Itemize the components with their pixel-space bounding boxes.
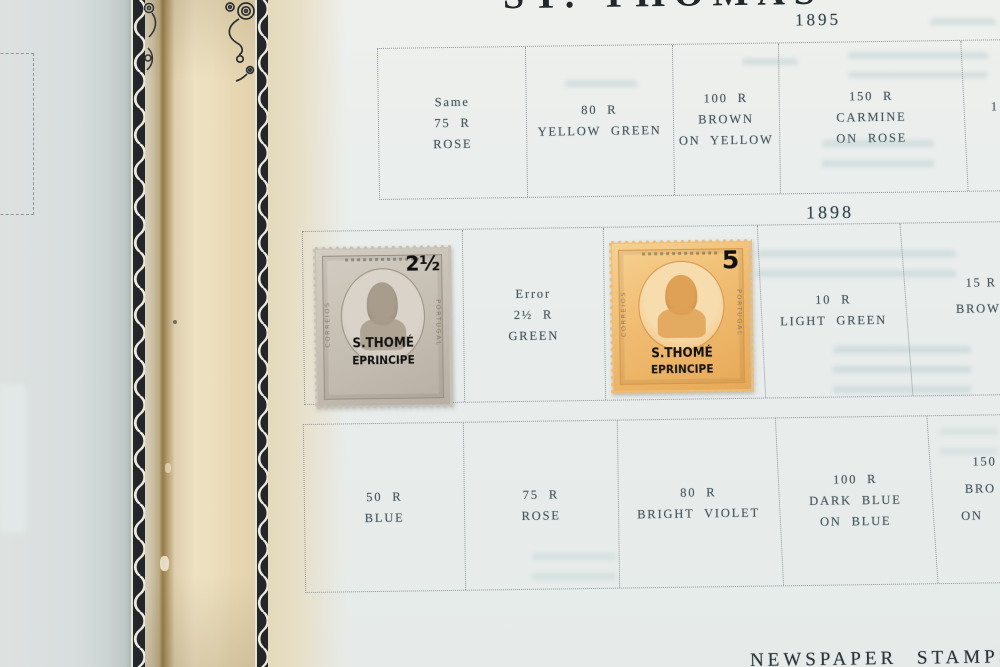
portrait-shoulders — [658, 308, 706, 339]
cell-label-line: BRIGHT VIOLET — [637, 502, 760, 525]
cell-label-line: 100 R — [833, 469, 878, 491]
show-through-text — [848, 52, 988, 78]
cell-label-line: Same — [435, 91, 470, 112]
show-through-text — [940, 428, 998, 468]
cell-label-line: 15 R — [965, 272, 996, 293]
stamp-body: CORREIOS PORTUGAL 5 S.THOMÉ EPRINCIPE — [612, 242, 751, 391]
overprint-line2: EPRINCIPE — [619, 361, 745, 377]
cell-label-line: ROSE — [433, 133, 472, 155]
cell-label-line: BLUE — [365, 507, 405, 529]
stamp-album-photo: ST. THOMAS 1895 Same 75 R ROSE 80 R YELL… — [0, 0, 1000, 667]
stamp-cell: Same 75 R ROSE — [378, 47, 527, 199]
stamp-body: CORREIOS PORTUGAL 2½ S.THOMÉ EPRINCIPE — [316, 248, 450, 406]
stamp-overprint: S.THOMÉ EPRINCIPE — [613, 345, 750, 378]
stamp-cell: 80 R BRIGHT VIOLET — [617, 418, 780, 587]
cell-label-line: DARK BLUE — [809, 490, 902, 512]
year-heading-1898: 1898 — [770, 201, 890, 224]
show-through-text — [930, 18, 996, 32]
cell-label-line: ON YELLOW — [679, 129, 774, 151]
stamp-right-inscription: PORTUGAL — [735, 277, 743, 348]
show-through-text — [822, 140, 934, 180]
stamp-cell: 50 R BLUE — [304, 423, 465, 592]
stamp-cell: 80 R YELLOW GREEN — [525, 45, 674, 197]
cell-label-line: 50 R — [366, 486, 402, 508]
paper-chip — [165, 463, 171, 473]
cell-label-line: 75 R — [523, 484, 559, 506]
cell-label-line: 80 R — [680, 482, 716, 504]
show-through-text — [0, 385, 26, 533]
stamp-denomination: 5 — [722, 247, 740, 272]
year-heading-1895: 1895 — [758, 9, 878, 31]
dust-speck — [173, 320, 177, 324]
cell-label-line: 80 R — [581, 100, 617, 122]
facing-page — [0, 0, 132, 667]
cell-label-line: BROW — [956, 298, 1000, 320]
cell-label-line: 2½ R — [514, 304, 554, 326]
show-through-text — [532, 553, 616, 587]
cell-label-line: 75 R — [434, 112, 470, 134]
show-through-text — [565, 80, 637, 98]
cell-label-line: 100 R — [703, 87, 748, 109]
cell-label-line: 1 — [991, 96, 999, 117]
overprint-line1: S.THOMÉ — [322, 336, 444, 354]
paper-chip — [160, 556, 169, 571]
cell-label-line: CARMINE — [836, 106, 907, 128]
cell-label-line: 10 R — [815, 289, 851, 311]
cell-label-line: GREEN — [508, 325, 559, 347]
cell-label-line: YELLOW GREEN — [538, 120, 662, 143]
overprint-line1: S.THOMÉ — [619, 345, 745, 363]
overprint-line2: EPRINCIPE — [323, 352, 445, 368]
newspaper-stamps-heading: NEWSPAPER STAMPS — [750, 646, 1000, 667]
stamp-denomination: 2½ — [405, 253, 440, 273]
stamp-row-bottom: 50 R BLUE 75 R ROSE 80 R BRIGHT VIOLET 1… — [303, 414, 1000, 593]
stamp-2half-gray: CORREIOS PORTUGAL 2½ S.THOMÉ EPRINCIPE — [313, 245, 453, 409]
cell-label-line: ROSE — [521, 505, 560, 527]
cell-label-line: LIGHT GREEN — [780, 310, 887, 332]
stamp-overprint: S.THOMÉ EPRINCIPE — [317, 335, 449, 367]
show-through-text — [833, 346, 971, 406]
stamp-cell: 100 R DARK BLUE ON BLUE — [778, 416, 933, 585]
cell-label-line: BROWN — [698, 108, 754, 130]
cell-label-line: ON BLUE — [820, 511, 892, 533]
facing-page-cell-fragment — [0, 53, 34, 215]
cell-label-line: 150 R — [849, 85, 894, 107]
stamp-5-orange: CORREIOS PORTUGAL 5 S.THOMÉ EPRINCIPE — [609, 239, 754, 394]
show-through-text — [756, 250, 956, 282]
show-through-text — [742, 58, 798, 76]
cell-label-line: BRO — [965, 478, 996, 499]
cell-label-line: Error — [515, 283, 551, 304]
cell-label-line: ON — [961, 506, 983, 527]
error-note-cell: Error 2½ R GREEN — [462, 228, 605, 402]
stamp-left-inscription: CORREIOS — [619, 279, 627, 350]
